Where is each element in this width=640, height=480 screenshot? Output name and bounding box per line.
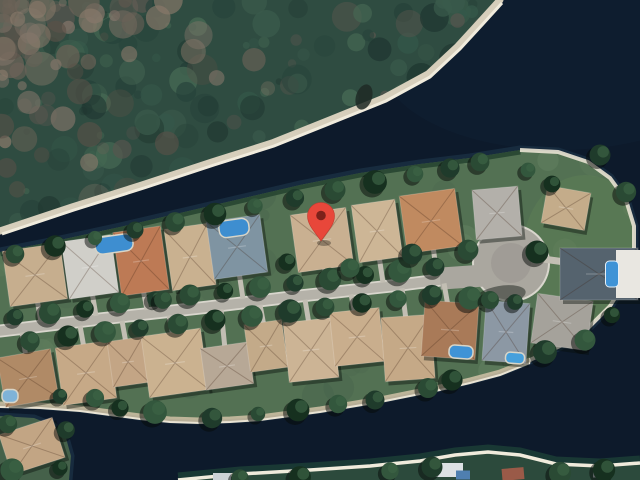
forest-clearing-blob — [25, 49, 43, 67]
map-viewport — [0, 0, 640, 480]
estate-pool — [606, 261, 619, 287]
house-south-row — [329, 307, 388, 370]
forest-canopy-blob — [130, 155, 152, 177]
forest-canopy-blob — [81, 103, 93, 115]
forest-clearing-blob — [12, 126, 38, 152]
forest-canopy-blob — [314, 35, 335, 56]
marker-pin-dot — [316, 211, 326, 221]
satellite-map[interactable] — [0, 0, 640, 480]
forest-clearing-blob — [67, 79, 93, 105]
forest-canopy-blob — [396, 10, 423, 37]
estate-white-wing — [616, 250, 640, 298]
forest-clearing-blob — [51, 106, 76, 131]
swimming-pool — [449, 345, 474, 360]
forest-canopy-blob — [135, 109, 161, 135]
forest-clearing-blob — [18, 81, 27, 90]
forest-clearing-blob — [9, 181, 25, 197]
forest-canopy-blob — [41, 92, 55, 106]
forest-canopy-blob — [152, 54, 161, 63]
forest-canopy-blob — [240, 95, 265, 120]
forest-clearing-blob — [67, 63, 83, 79]
forest-canopy-blob — [100, 54, 113, 67]
house-north-row — [351, 199, 406, 267]
forest-canopy-blob — [450, 13, 465, 28]
forest-canopy-blob — [176, 82, 196, 102]
forest-clearing-blob — [261, 81, 275, 95]
forest-canopy-blob — [249, 38, 260, 49]
swimming-pool — [505, 352, 525, 364]
forest-canopy-blob — [290, 34, 301, 45]
forest-canopy-blob — [353, 4, 372, 23]
tip-estate — [560, 248, 640, 304]
forest-clearing-blob — [50, 59, 61, 70]
forest-canopy-blob — [418, 44, 435, 61]
forest-clearing-blob — [79, 8, 103, 32]
forest-canopy-blob — [252, 10, 280, 38]
forest-clearing-blob — [100, 32, 109, 41]
forest-canopy-blob — [207, 121, 228, 142]
forest-clearing-blob — [17, 91, 40, 114]
forest-clearing-blob — [34, 147, 49, 162]
forest-canopy-blob — [119, 59, 145, 85]
forest-clearing-blob — [155, 131, 179, 155]
forest-canopy-blob — [113, 140, 132, 159]
forest-clearing-blob — [121, 46, 137, 62]
forest-canopy-blob — [390, 59, 407, 76]
forest-canopy-blob — [47, 148, 69, 170]
forest-clearing-blob — [77, 122, 102, 147]
forest-clearing-blob — [20, 23, 41, 44]
forest-canopy-blob — [282, 64, 312, 94]
forest-clearing-blob — [242, 48, 265, 71]
house-south-row — [141, 328, 213, 402]
forest-clearing-blob — [9, 62, 26, 79]
forest-clearing-blob — [209, 70, 225, 86]
forest-canopy-blob — [190, 94, 219, 123]
waterfront-building — [456, 471, 470, 480]
forest-canopy-blob — [253, 130, 266, 143]
forest-clearing-blob — [181, 39, 206, 64]
forest-canopy-blob — [362, 29, 374, 41]
forest-clearing-blob — [81, 54, 97, 70]
forest-clearing-blob — [97, 142, 109, 154]
house-north-row — [472, 186, 526, 244]
marker-shadow — [317, 240, 331, 246]
forest-canopy-blob — [141, 84, 163, 106]
forest-canopy-blob — [465, 5, 478, 18]
forest-clearing-blob — [122, 12, 145, 35]
swimming-pool — [2, 390, 18, 403]
forest-clearing-blob — [80, 154, 98, 172]
waterfront-building — [502, 467, 525, 480]
forest-canopy-blob — [227, 115, 242, 130]
forest-canopy-blob — [368, 37, 392, 61]
forest-clearing-blob — [106, 89, 134, 117]
forest-canopy-blob — [297, 48, 309, 60]
forest-canopy-blob — [258, 37, 269, 48]
